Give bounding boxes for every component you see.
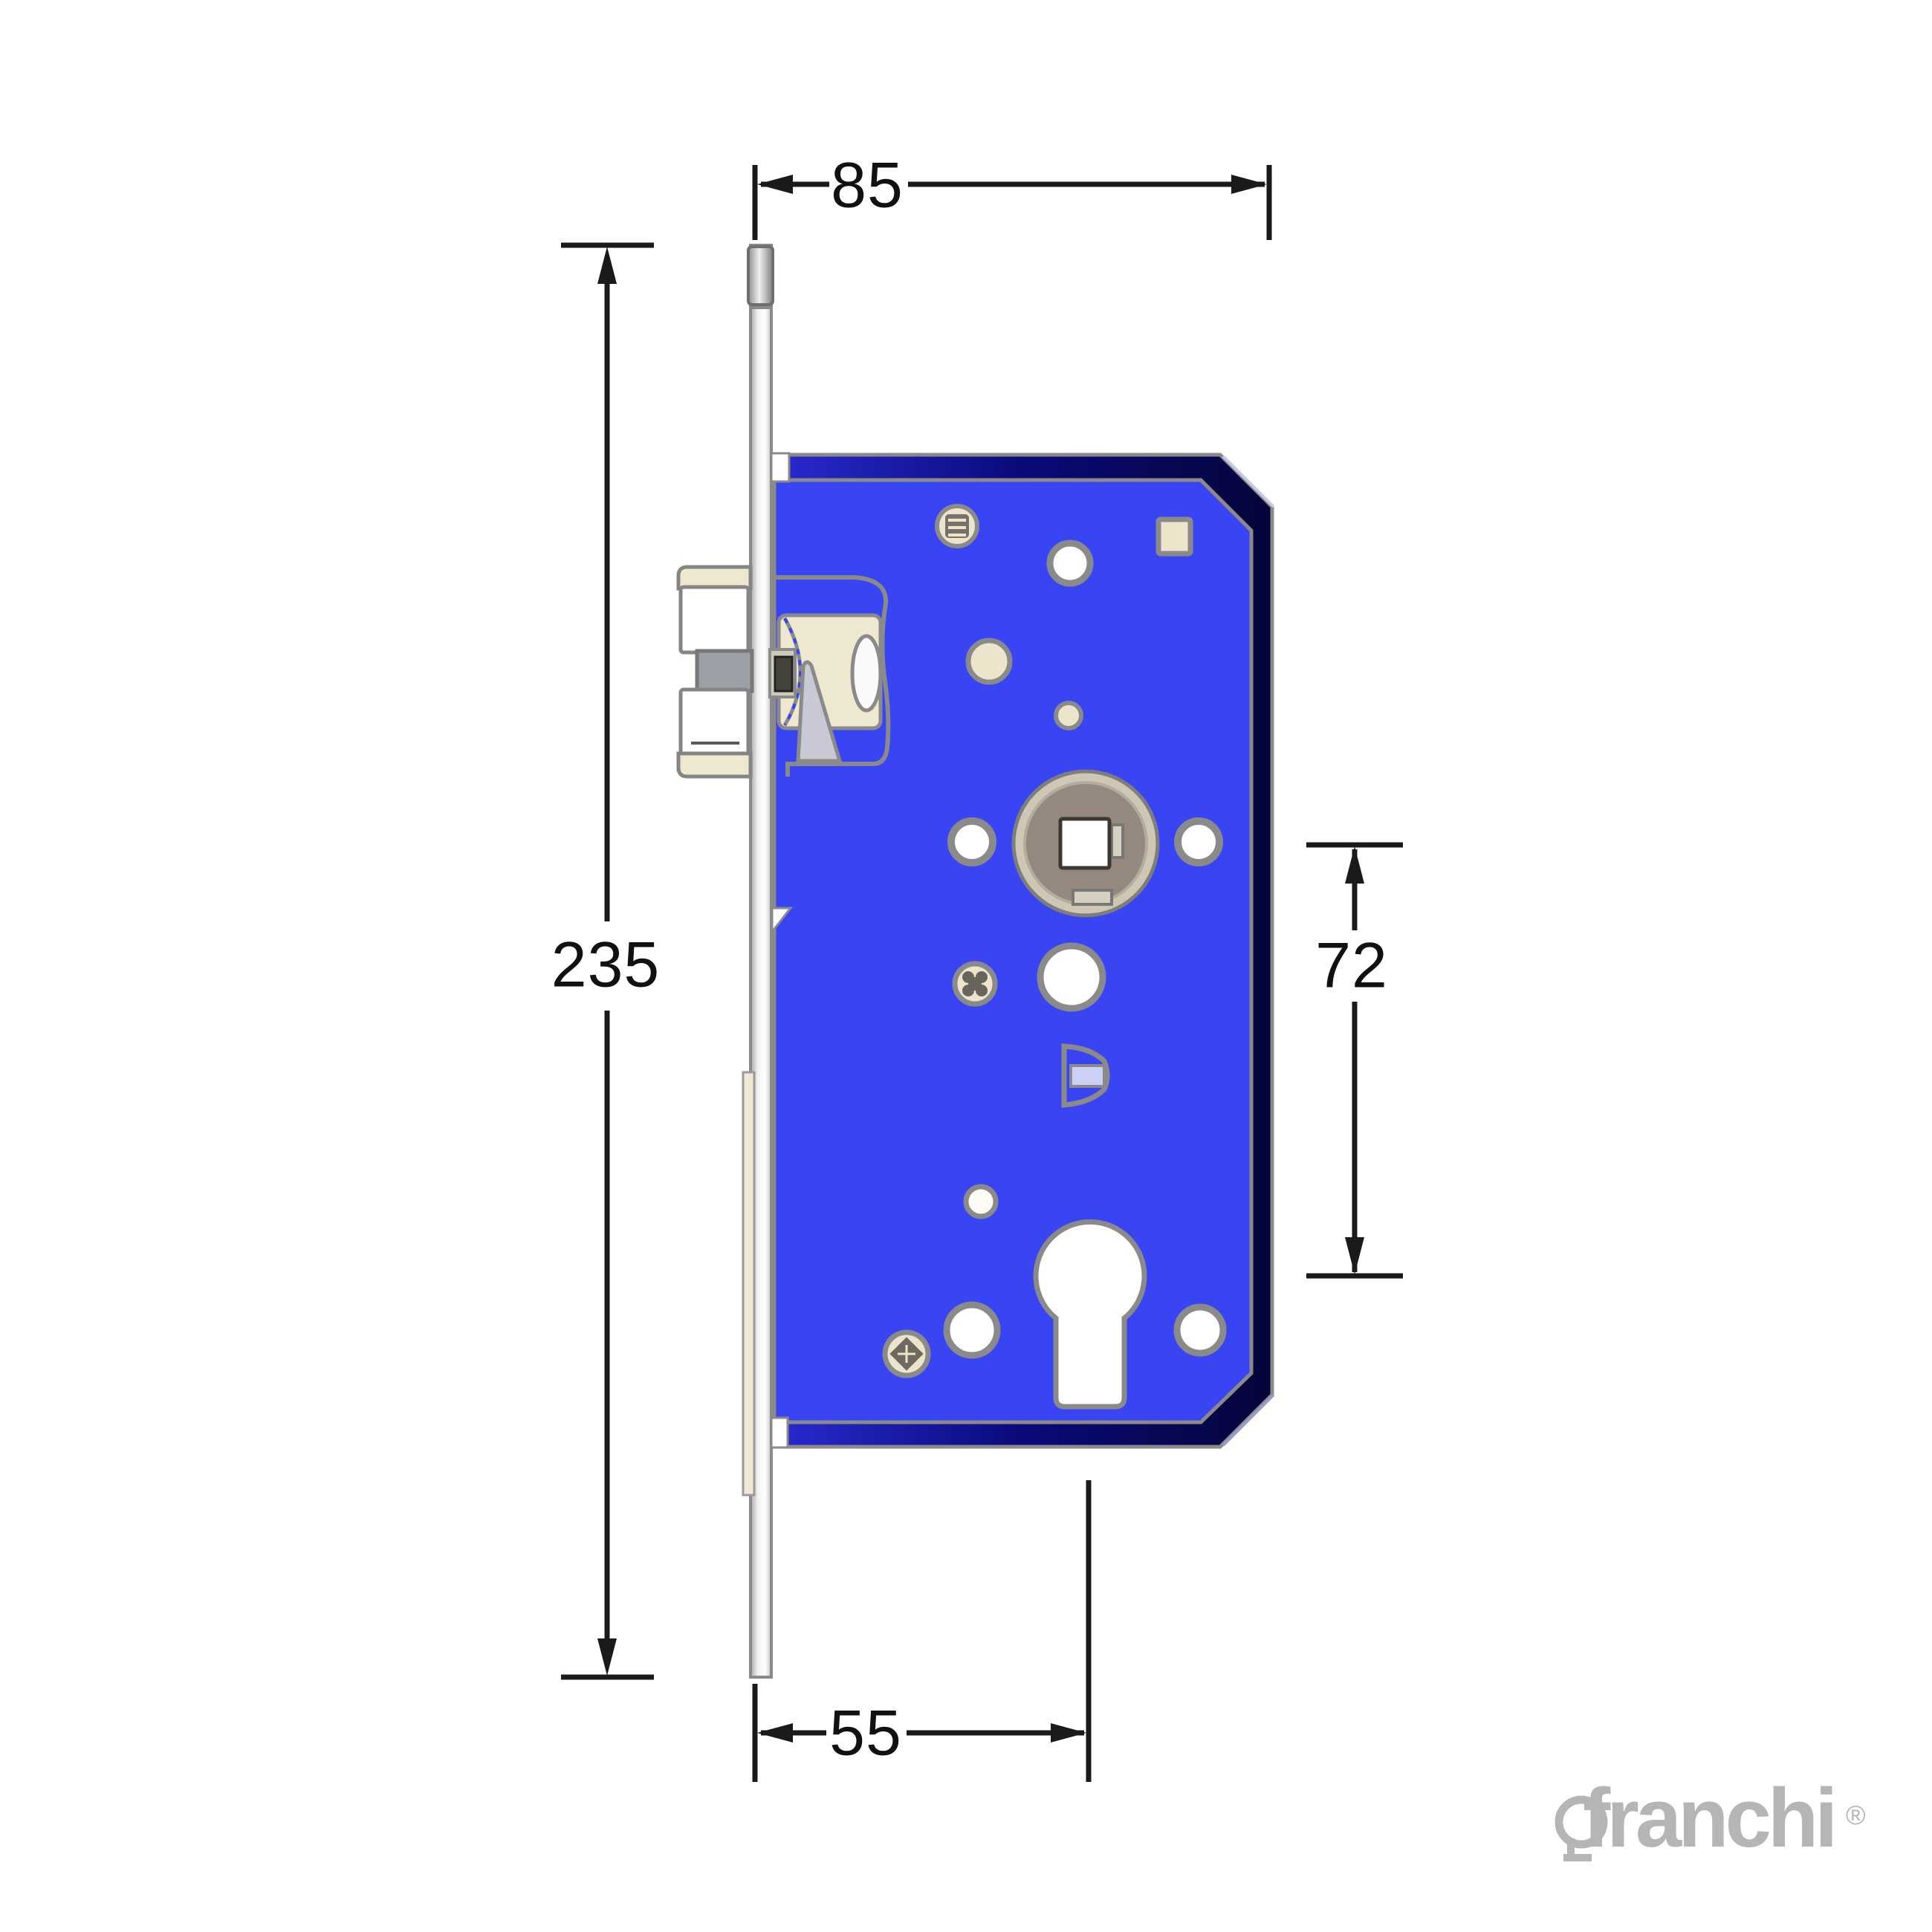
faceplate <box>743 245 773 1677</box>
d-bracket-inner <box>1071 1066 1104 1086</box>
lock-drawing <box>0 0 1932 1932</box>
hole-square <box>1158 519 1190 554</box>
latch-bolt <box>678 567 752 777</box>
dimension-72-right <box>1306 845 1403 1276</box>
registered-trademark-icon: ® <box>1846 1800 1866 1831</box>
hole-small-above-cylinder <box>966 1187 996 1216</box>
hole-hub-right <box>1178 821 1219 863</box>
hole-below-hub <box>1040 946 1103 1008</box>
hole-beige-mid <box>968 641 1010 682</box>
faceplate-top-cap <box>748 247 773 305</box>
dim-label-55: 55 <box>829 1697 902 1771</box>
latch-middle-gray <box>697 651 752 691</box>
dim-label-72: 72 <box>1315 930 1388 1003</box>
hub-spindle-square <box>1060 819 1109 868</box>
notch-bottom-left <box>771 1418 788 1448</box>
hole-top-white <box>1050 543 1090 583</box>
arrowhead-left <box>757 1723 793 1743</box>
hole-cylinder-left <box>947 1305 997 1355</box>
hub-bottom-tab <box>1073 890 1112 904</box>
hole-beige-small <box>1056 703 1081 728</box>
arrowhead-up <box>597 247 617 284</box>
dim-label-235: 235 <box>551 929 661 1002</box>
notch-top-left <box>771 453 789 482</box>
latch-lower-block <box>681 690 748 755</box>
arrowhead-right <box>1051 1723 1086 1743</box>
arrowhead-right <box>1231 175 1267 194</box>
arrowhead-down <box>597 1638 617 1676</box>
dimension-55-bottom <box>755 1480 1089 1782</box>
hole-hub-left <box>951 821 993 863</box>
hub-side-tab <box>1112 825 1123 858</box>
brand-logo: franchi ® <box>1557 1777 1884 1874</box>
arrowhead-up <box>1345 846 1364 884</box>
tail-slot-dark <box>775 657 792 691</box>
hole-cylinder-right <box>1177 1307 1223 1353</box>
brand-logo-text: franchi <box>1583 1777 1834 1859</box>
latch-bottom-cap <box>678 753 751 777</box>
lock-body <box>771 453 1274 1448</box>
deadbolt-face-strip <box>743 1072 754 1495</box>
arrowhead-left <box>757 175 793 194</box>
dim-label-85: 85 <box>831 149 904 223</box>
latch-upper-block <box>681 587 748 652</box>
follower-crescent-cutout <box>852 636 881 710</box>
technical-drawing-canvas: 85 235 72 55 franchi ® <box>0 0 1932 1932</box>
arrowhead-down <box>1345 1237 1364 1274</box>
spindle-hub <box>1014 771 1158 915</box>
